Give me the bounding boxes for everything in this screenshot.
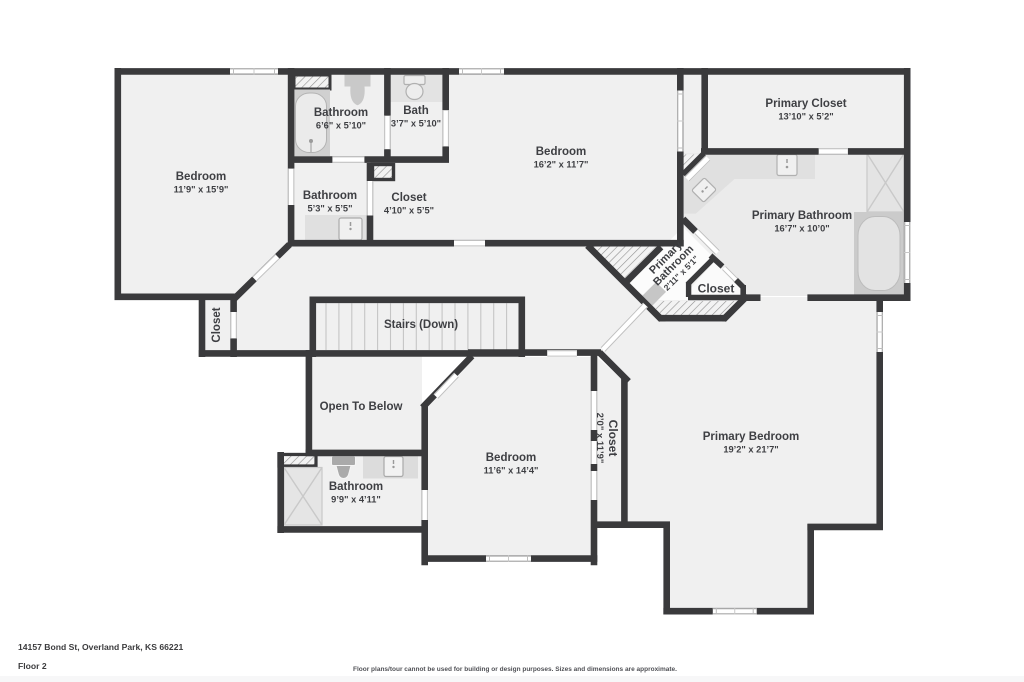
svg-text:2’0" x 11’9": 2’0" x 11’9"	[594, 413, 605, 464]
svg-text:Closet: Closet	[211, 307, 223, 342]
svg-text:Primary Bedroom: Primary Bedroom	[703, 431, 800, 443]
svg-text:4’10" x 5’5": 4’10" x 5’5"	[384, 206, 434, 216]
svg-text:Open To Below: Open To Below	[320, 401, 403, 413]
svg-text:Bathroom: Bathroom	[303, 190, 357, 202]
svg-text:Closet: Closet	[698, 282, 735, 296]
svg-text:11’9" x 15’9": 11’9" x 15’9"	[174, 185, 229, 195]
svg-text:9’9" x 4’11": 9’9" x 4’11"	[331, 495, 381, 505]
svg-text:Bath: Bath	[403, 105, 429, 117]
svg-text:Closet: Closet	[606, 420, 620, 457]
svg-text:13’10" x 5’2": 13’10" x 5’2"	[778, 112, 833, 122]
svg-text:Bathroom: Bathroom	[314, 107, 368, 119]
svg-text:19’2" x 21’7": 19’2" x 21’7"	[723, 445, 778, 455]
svg-text:11’6" x 14’4": 11’6" x 14’4"	[484, 466, 539, 476]
svg-text:5’3" x 5’5": 5’3" x 5’5"	[307, 204, 352, 214]
svg-text:16’7" x 10’0": 16’7" x 10’0"	[774, 224, 829, 234]
svg-text:16’2" x 11’7": 16’2" x 11’7"	[534, 160, 589, 170]
svg-text:Closet: Closet	[391, 192, 426, 204]
svg-text:Primary Closet: Primary Closet	[765, 98, 846, 110]
svg-text:Stairs (Down): Stairs (Down)	[384, 319, 458, 331]
svg-text:6’6" x 5’10": 6’6" x 5’10"	[316, 121, 366, 131]
svg-text:Bathroom: Bathroom	[329, 481, 383, 493]
svg-text:Primary Bathroom: Primary Bathroom	[752, 210, 852, 222]
svg-text:3’7" x 5’10": 3’7" x 5’10"	[391, 119, 441, 129]
svg-text:Bedroom: Bedroom	[536, 146, 586, 158]
svg-text:Bedroom: Bedroom	[176, 171, 226, 183]
svg-text:Bedroom: Bedroom	[486, 452, 536, 464]
